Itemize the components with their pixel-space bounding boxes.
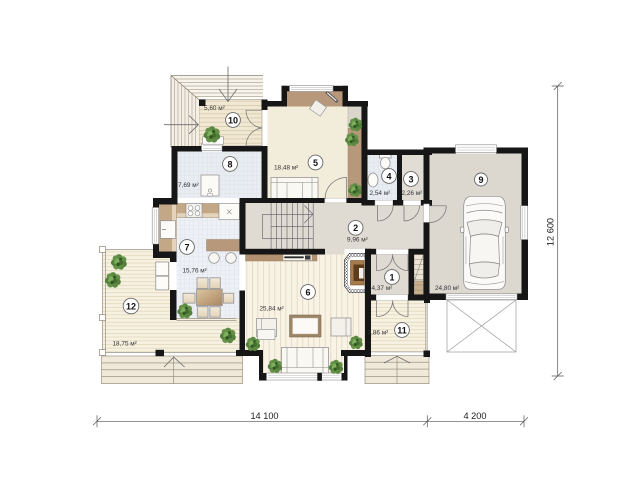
svg-text:9,96 м²: 9,96 м² [347, 237, 368, 244]
svg-text:1: 1 [389, 272, 394, 282]
svg-text:4,37 м²: 4,37 м² [372, 285, 393, 292]
svg-text:18,48 м²: 18,48 м² [274, 165, 298, 172]
svg-text:8: 8 [227, 159, 232, 169]
svg-text:5: 5 [313, 158, 318, 168]
svg-text:14 100: 14 100 [250, 411, 278, 421]
svg-text:2,26 м²: 2,26 м² [402, 190, 423, 197]
svg-text:25,84 м²: 25,84 м² [260, 306, 284, 313]
svg-text:7: 7 [184, 242, 189, 252]
svg-text:3,86 м²: 3,86 м² [368, 330, 389, 337]
svg-text:9: 9 [478, 175, 483, 185]
svg-text:6: 6 [305, 287, 310, 297]
svg-text:7,69 м²: 7,69 м² [178, 182, 199, 189]
svg-text:15,76 м²: 15,76 м² [183, 268, 207, 275]
svg-text:4: 4 [386, 171, 391, 181]
svg-text:12: 12 [126, 301, 136, 311]
svg-text:4 200: 4 200 [464, 411, 487, 421]
svg-text:10: 10 [228, 115, 238, 125]
svg-text:2,54 м²: 2,54 м² [370, 190, 391, 197]
svg-text:12 600: 12 600 [546, 218, 556, 246]
svg-text:3: 3 [408, 174, 413, 184]
svg-text:24,80 м²: 24,80 м² [435, 285, 459, 292]
svg-text:5,60 м²: 5,60 м² [204, 105, 225, 112]
svg-text:11: 11 [397, 325, 407, 335]
svg-text:2: 2 [353, 223, 358, 233]
svg-text:18,75 м²: 18,75 м² [113, 341, 137, 348]
